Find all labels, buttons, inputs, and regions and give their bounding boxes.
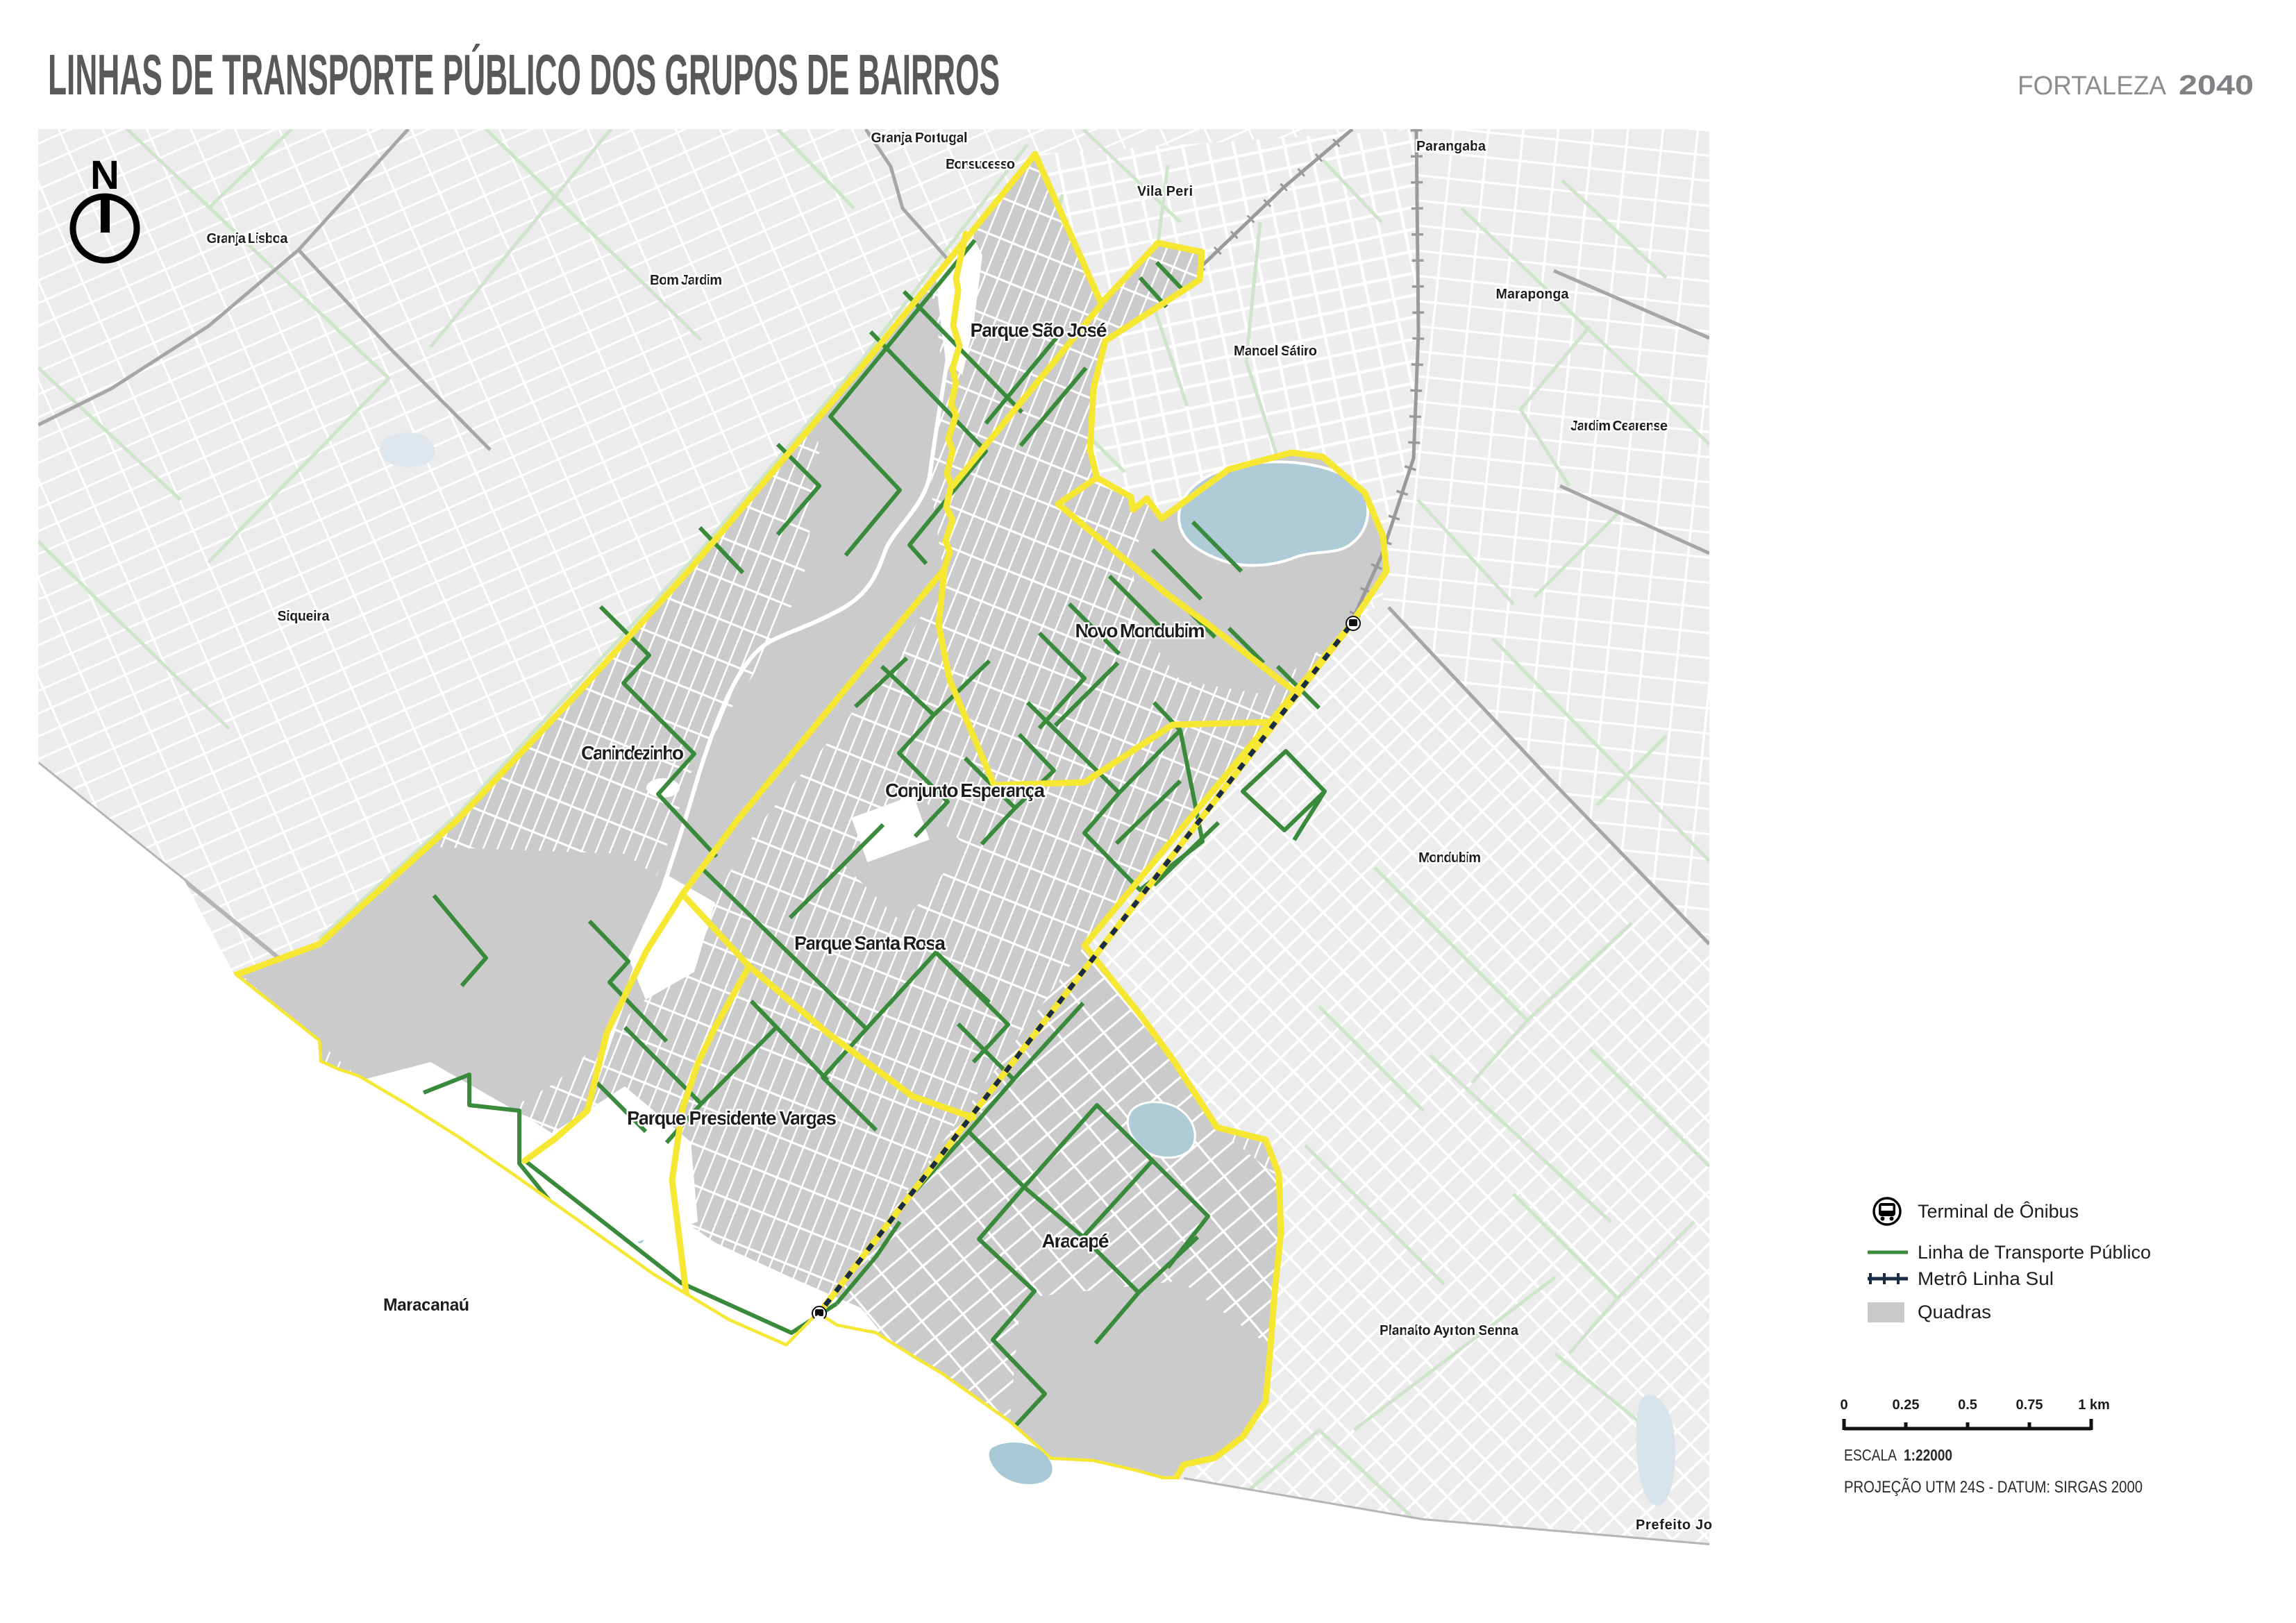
svg-text:2040: 2040 [2179,70,2254,101]
svg-text:Parque Santa Rosa: Parque Santa Rosa [794,932,946,954]
svg-text:1:22000: 1:22000 [1904,1446,1952,1464]
svg-text:Mondubim: Mondubim [1418,850,1481,866]
svg-text:ESCALA: ESCALA [1844,1446,1897,1464]
svg-text:Jardim Cearense: Jardim Cearense [1570,419,1668,434]
svg-text:Parque Presidente Vargas: Parque Presidente Vargas [627,1107,837,1129]
svg-text:LINHAS DE TRANSPORTE PÚBLICO D: LINHAS DE TRANSPORTE PÚBLICO DOS GRUPOS … [48,42,1000,107]
svg-text:Metrô Linha Sul: Metrô Linha Sul [1918,1268,2054,1289]
svg-text:Siqueira: Siqueira [278,609,330,624]
svg-text:Granja Portugal: Granja Portugal [871,131,968,146]
svg-text:Linha de Transporte Público: Linha de Transporte Público [1918,1242,2151,1263]
svg-text:Bonsucesso: Bonsucesso [946,157,1015,172]
svg-text:FORTALEZA: FORTALEZA [2018,72,2167,101]
svg-text:0.25: 0.25 [1893,1397,1920,1413]
svg-text:Planalto Ayrton Senna: Planalto Ayrton Senna [1380,1323,1519,1338]
svg-text:Vila Peri: Vila Peri [1137,184,1193,199]
svg-text:Parangaba: Parangaba [1416,139,1486,154]
svg-text:Prefeito Jo: Prefeito Jo [1636,1517,1712,1533]
svg-text:Granja Lisboa: Granja Lisboa [207,231,289,246]
svg-text:0: 0 [1840,1397,1847,1413]
svg-text:Conjunto Esperança: Conjunto Esperança [885,780,1045,801]
svg-text:PROJEÇÃO UTM 24S - DATUM: SIRG: PROJEÇÃO UTM 24S - DATUM: SIRGAS 2000 [1844,1478,2143,1497]
svg-text:Maracanaú: Maracanaú [383,1295,469,1315]
svg-text:1 km: 1 km [2078,1397,2110,1413]
svg-text:Novo Mondubim: Novo Mondubim [1075,620,1205,641]
svg-text:0.75: 0.75 [2016,1397,2043,1413]
svg-text:Canindezinho: Canindezinho [581,742,684,764]
svg-text:0.5: 0.5 [1958,1397,1977,1413]
svg-text:Quadras: Quadras [1918,1302,1991,1322]
svg-text:Manoel Sátiro: Manoel Sátiro [1234,344,1317,359]
svg-text:Aracapé: Aracapé [1042,1230,1109,1252]
svg-text:Terminal de Ônibus: Terminal de Ônibus [1918,1200,2079,1222]
svg-text:Maraponga: Maraponga [1496,287,1570,302]
svg-text:N: N [90,153,119,198]
svg-text:Bom Jardim: Bom Jardim [650,273,722,288]
svg-text:Parque São José: Parque São José [971,319,1107,341]
